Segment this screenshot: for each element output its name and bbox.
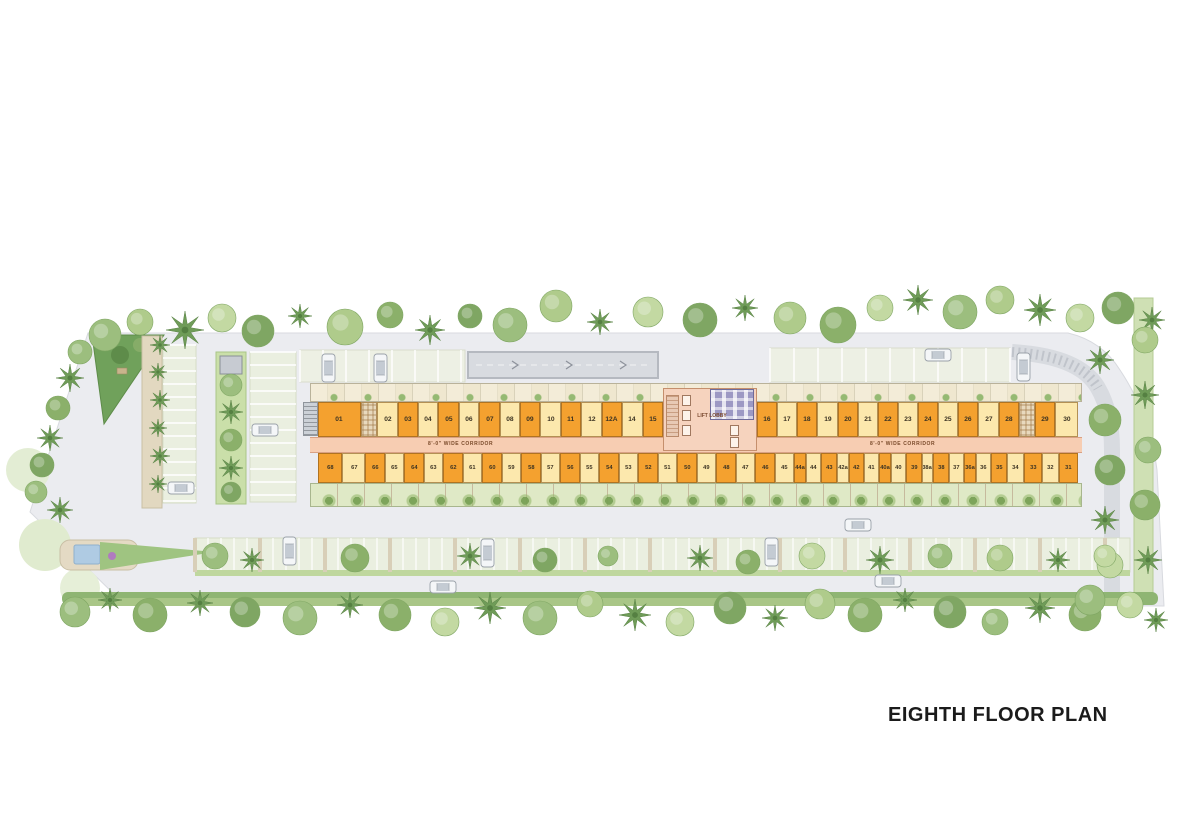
unit-52: 52 <box>638 453 658 483</box>
car-roof <box>324 361 333 375</box>
unit-32: 32 <box>1042 453 1059 483</box>
stall-post <box>583 538 587 572</box>
stall-post <box>908 538 912 572</box>
palm-center <box>1154 618 1158 622</box>
unit-01: 01 <box>318 402 361 437</box>
staircase-icon <box>666 395 679 437</box>
lift-lobby-label: LIFT LOBBY <box>697 413 727 419</box>
parking-column-west <box>163 345 196 503</box>
tree-highlight <box>345 548 358 561</box>
bench <box>117 368 127 374</box>
car-roof <box>175 484 187 492</box>
tree-highlight <box>670 612 683 625</box>
unit-number: 08 <box>506 416 513 423</box>
stall-post <box>778 538 782 572</box>
lift-icon <box>730 425 739 436</box>
unit-number: 41 <box>868 465 874 471</box>
hedge-bottom-parking <box>195 570 1130 576</box>
tree-highlight <box>991 549 1003 561</box>
corridor-label: 8'-0" WIDE CORRIDOR <box>428 441 493 447</box>
palm-center <box>1037 307 1043 313</box>
tree-highlight <box>825 312 841 328</box>
unit-46: 46 <box>755 453 775 483</box>
unit-number: 44a <box>796 465 806 471</box>
unit-17: 17 <box>777 402 797 437</box>
unit-number: 04 <box>425 416 432 423</box>
lift-icon <box>682 410 691 421</box>
palm-center <box>156 426 159 429</box>
tree-highlight <box>1136 331 1148 343</box>
unit-21: 21 <box>858 402 878 437</box>
unit-number: 28 <box>1005 416 1012 423</box>
palm-center <box>108 598 112 602</box>
tree-highlight <box>719 597 733 611</box>
staircase-west <box>303 402 318 436</box>
tree-highlight <box>528 606 543 621</box>
unit-number: 14 <box>629 416 636 423</box>
palm-center <box>903 598 907 602</box>
car-roof <box>932 351 944 359</box>
unit-number: 37 <box>953 465 959 471</box>
unit-36: 36 <box>976 453 991 483</box>
unit-04: 04 <box>418 402 438 437</box>
car-roof <box>767 545 776 559</box>
unit-number: 12 <box>588 416 595 423</box>
car <box>283 537 296 565</box>
stall-post <box>973 538 977 572</box>
car-roof <box>437 583 449 591</box>
tree-highlight <box>131 313 143 325</box>
palm-center <box>632 612 638 618</box>
unit-41: 41 <box>864 453 879 483</box>
unit-number: 26 <box>965 416 972 423</box>
tree-highlight <box>138 603 153 618</box>
car <box>481 539 494 567</box>
palm-center <box>1150 318 1155 323</box>
unit-number: 64 <box>411 465 417 471</box>
unit-number: 10 <box>547 416 554 423</box>
unit-number: 45 <box>781 465 787 471</box>
unit-number: 62 <box>450 465 456 471</box>
unit-40a: 40a <box>879 453 891 483</box>
tree-highlight <box>740 554 751 565</box>
palm-center <box>158 343 162 347</box>
palm-center <box>48 436 53 441</box>
tree-highlight <box>803 547 815 559</box>
unit-20: 20 <box>838 402 858 437</box>
unit-number: 67 <box>351 465 357 471</box>
tree-highlight <box>34 457 45 468</box>
unit-number: 06 <box>465 416 472 423</box>
lift-icon <box>682 425 691 436</box>
unit-number: 07 <box>486 416 493 423</box>
palm-center <box>743 306 748 311</box>
unit-27: 27 <box>978 402 998 437</box>
palm-center <box>156 370 159 373</box>
tree-highlight <box>810 594 824 608</box>
tree-highlight <box>986 613 998 625</box>
palm-center <box>1037 605 1042 610</box>
car <box>925 349 951 361</box>
unit-57: 57 <box>541 453 561 483</box>
unit-number: 53 <box>625 465 631 471</box>
unit-33: 33 <box>1024 453 1041 483</box>
palm-center <box>1097 357 1102 362</box>
palm-center <box>915 297 920 302</box>
unit-51: 51 <box>658 453 678 483</box>
stall-post <box>648 538 652 572</box>
car-roof <box>259 426 271 434</box>
palm-center <box>1102 517 1107 522</box>
unit-number: 23 <box>904 416 911 423</box>
tree-highlight <box>498 313 513 328</box>
unit-05: 05 <box>438 402 458 437</box>
unit-24: 24 <box>918 402 938 437</box>
corridor-label: 8'-0" WIDE CORRIDOR <box>870 441 935 447</box>
palm-center <box>468 554 473 559</box>
unit-16: 16 <box>757 402 777 437</box>
unit-segment-top-left: 01020304050607080910111212A1415 <box>318 402 663 437</box>
tree-highlight <box>601 549 610 558</box>
tree-highlight <box>28 484 38 494</box>
palm-center <box>182 327 189 334</box>
tree-highlight <box>223 432 233 442</box>
palm-center <box>1142 392 1147 397</box>
unit-48: 48 <box>716 453 736 483</box>
lift-lobby: LIFT LOBBY <box>663 388 757 451</box>
palm-center <box>1145 557 1150 562</box>
unit-number: 51 <box>664 465 670 471</box>
palm-center <box>698 556 703 561</box>
unit-number: 12A <box>606 416 618 423</box>
unit-number: 65 <box>391 465 397 471</box>
tree-highlight <box>94 324 108 338</box>
palm-center <box>158 398 162 402</box>
building-block: 01020304050607080910111212A1415 16171819… <box>310 383 1082 505</box>
palm-center <box>158 454 162 458</box>
unit-number: 32 <box>1047 465 1053 471</box>
car-roof <box>285 544 294 558</box>
palm-center <box>298 314 302 318</box>
unit-number: 15 <box>649 416 656 423</box>
unit-25: 25 <box>938 402 958 437</box>
stall-post <box>518 538 522 572</box>
unit-number: 55 <box>586 465 592 471</box>
utility-kiosk <box>220 356 242 374</box>
unit-number: 18 <box>804 416 811 423</box>
tree-highlight <box>1121 596 1133 608</box>
unit-22: 22 <box>878 402 898 437</box>
tree-highlight <box>212 308 225 321</box>
unit-number: 52 <box>645 465 651 471</box>
tree-highlight <box>247 320 261 334</box>
unit-number: 30 <box>1063 416 1070 423</box>
unit-08: 08 <box>500 402 520 437</box>
stall-post <box>1038 538 1042 572</box>
car-roof <box>852 521 864 529</box>
unit-38a: 38a <box>922 453 934 483</box>
unit-07: 07 <box>479 402 499 437</box>
unit-39: 39 <box>906 453 921 483</box>
unit-11: 11 <box>561 402 581 437</box>
unit-number: 60 <box>489 465 495 471</box>
unit-number: 61 <box>469 465 475 471</box>
car <box>252 424 278 436</box>
tree-highlight <box>72 344 83 355</box>
unit-number: 17 <box>783 416 790 423</box>
unit-19: 19 <box>817 402 837 437</box>
tree-highlight <box>65 602 79 616</box>
tree-highlight <box>1094 409 1108 423</box>
palm-center <box>773 616 778 621</box>
unit-23: 23 <box>898 402 918 437</box>
tree-highlight <box>1135 495 1149 509</box>
atrium-courtyard <box>1019 402 1036 437</box>
stall-post <box>323 538 327 572</box>
terrace-strip-bottom <box>310 483 1082 507</box>
unit-number: 59 <box>508 465 514 471</box>
unit-number: 54 <box>606 465 612 471</box>
unit-number: 11 <box>568 416 575 423</box>
tree-highlight <box>581 595 593 607</box>
car-roof <box>376 361 385 375</box>
tree-highlight <box>384 604 398 618</box>
unit-number: 58 <box>528 465 534 471</box>
palm-center <box>598 320 603 325</box>
tree-highlight <box>462 308 473 319</box>
lift-icon <box>730 437 739 448</box>
tree-highlight <box>853 603 868 618</box>
unit-number: 36 <box>980 465 986 471</box>
unit-38: 38 <box>933 453 948 483</box>
tree-highlight <box>871 299 883 311</box>
stall-post <box>388 538 392 572</box>
palm-center <box>229 466 233 470</box>
stall-post <box>453 538 457 572</box>
unit-31: 31 <box>1059 453 1078 483</box>
palm-center <box>487 605 493 611</box>
unit-number: 21 <box>864 416 871 423</box>
unit-number: 01 <box>336 416 343 423</box>
lift-icon <box>682 395 691 406</box>
tree-highlight <box>688 308 703 323</box>
unit-number: 57 <box>547 465 553 471</box>
palm-center <box>58 508 63 513</box>
unit-06: 06 <box>459 402 479 437</box>
unit-number: 29 <box>1041 416 1048 423</box>
palm-center <box>1056 558 1060 562</box>
tree-highlight <box>1139 441 1151 453</box>
tree-highlight <box>1070 308 1083 321</box>
unit-number: 09 <box>527 416 534 423</box>
unit-28: 28 <box>999 402 1019 437</box>
palm-center <box>156 482 159 485</box>
unit-35: 35 <box>991 453 1007 483</box>
unit-number: 43 <box>826 465 832 471</box>
driveway-ramp <box>468 352 658 378</box>
unit-63: 63 <box>424 453 444 483</box>
unit-row-bottom: 6867666564636261605958575655545352515049… <box>310 453 1082 483</box>
tree-highlight <box>332 314 348 330</box>
palm-center <box>348 603 353 608</box>
car <box>1017 353 1030 381</box>
stall-post <box>193 538 197 572</box>
unit-number: 42a <box>838 465 848 471</box>
tree-highlight <box>223 377 233 387</box>
unit-number: 49 <box>703 465 709 471</box>
tree-highlight <box>779 307 793 321</box>
unit-segment-top-right: 161718192021222324252627282930 <box>757 402 1078 437</box>
unit-36a: 36a <box>964 453 976 483</box>
tree-highlight <box>1097 548 1107 558</box>
unit-number: 40a <box>880 465 890 471</box>
unit-37: 37 <box>949 453 964 483</box>
car <box>845 519 871 531</box>
unit-number: 42 <box>853 465 859 471</box>
unit-number: 20 <box>844 416 851 423</box>
car-roof <box>882 577 894 585</box>
tree-highlight <box>224 485 233 494</box>
unit-56: 56 <box>560 453 580 483</box>
unit-02: 02 <box>377 402 397 437</box>
unit-43: 43 <box>821 453 836 483</box>
tree-highlight <box>1100 460 1114 474</box>
unit-44: 44 <box>806 453 821 483</box>
tree-highlight <box>435 612 448 625</box>
unit-number: 02 <box>384 416 391 423</box>
unit-number: 36a <box>965 465 975 471</box>
unit-62: 62 <box>443 453 463 483</box>
unit-61: 61 <box>463 453 483 483</box>
unit-number: 27 <box>985 416 992 423</box>
car-roof <box>1019 360 1028 374</box>
car <box>765 538 778 566</box>
tree-highlight <box>932 548 943 559</box>
unit-68: 68 <box>318 453 342 483</box>
palm-center <box>198 601 203 606</box>
unit-number: 05 <box>445 416 452 423</box>
unit-54: 54 <box>599 453 619 483</box>
palm-center <box>229 410 233 414</box>
tree-highlight <box>545 295 559 309</box>
unit-number: 16 <box>763 416 770 423</box>
unit-number: 48 <box>723 465 729 471</box>
unit-40: 40 <box>891 453 906 483</box>
unit-29: 29 <box>1035 402 1055 437</box>
unit-number: 22 <box>884 416 891 423</box>
unit-64: 64 <box>404 453 424 483</box>
tree-highlight <box>990 290 1003 303</box>
tree-highlight <box>638 302 652 316</box>
unit-44a: 44a <box>794 453 806 483</box>
unit-42: 42 <box>849 453 864 483</box>
unit-number: 34 <box>1013 465 1019 471</box>
unit-number: 66 <box>372 465 378 471</box>
unit-10: 10 <box>540 402 560 437</box>
unit-number: 19 <box>824 416 831 423</box>
unit-15: 15 <box>643 402 663 437</box>
tree-highlight <box>235 602 249 616</box>
unit-number: 50 <box>684 465 690 471</box>
floor-plan-page: { "title": "EIGHTH FLOOR PLAN", "palette… <box>0 0 1200 821</box>
tree-highlight <box>1107 297 1121 311</box>
car <box>168 482 194 494</box>
palm-center <box>427 327 432 332</box>
palm-center <box>67 375 72 380</box>
unit-47: 47 <box>736 453 756 483</box>
tree-highlight <box>537 552 548 563</box>
tree-highlight <box>206 547 218 559</box>
unit-59: 59 <box>502 453 522 483</box>
unit-09: 09 <box>520 402 540 437</box>
unit-66: 66 <box>365 453 385 483</box>
unit-49: 49 <box>697 453 717 483</box>
unit-12A: 12A <box>602 402 622 437</box>
unit-number: 35 <box>996 465 1002 471</box>
unit-42a: 42a <box>837 453 849 483</box>
unit-number: 24 <box>924 416 931 423</box>
unit-number: 25 <box>944 416 951 423</box>
car <box>322 354 335 382</box>
unit-53: 53 <box>619 453 639 483</box>
unit-number: 33 <box>1030 465 1036 471</box>
unit-number: 47 <box>742 465 748 471</box>
unit-number: 38a <box>923 465 933 471</box>
unit-number: 40 <box>895 465 901 471</box>
car <box>430 581 456 593</box>
car-roof <box>483 546 492 560</box>
tree-highlight <box>381 306 393 318</box>
unit-number: 44 <box>811 465 817 471</box>
unit-26: 26 <box>958 402 978 437</box>
car <box>875 575 901 587</box>
palm-center <box>877 557 882 562</box>
tree-highlight <box>939 601 953 615</box>
unit-number: 38 <box>938 465 944 471</box>
unit-34: 34 <box>1007 453 1024 483</box>
unit-67: 67 <box>342 453 365 483</box>
unit-50: 50 <box>677 453 697 483</box>
unit-58: 58 <box>521 453 541 483</box>
tree-highlight <box>288 606 303 621</box>
unit-18: 18 <box>797 402 817 437</box>
unit-12: 12 <box>581 402 601 437</box>
unit-number: 68 <box>327 465 333 471</box>
atrium-courtyard <box>361 402 378 437</box>
unit-55: 55 <box>580 453 600 483</box>
palm-center <box>250 558 254 562</box>
unit-number: 39 <box>911 465 917 471</box>
unit-14: 14 <box>622 402 642 437</box>
unit-number: 56 <box>567 465 573 471</box>
unit-number: 46 <box>762 465 768 471</box>
tree-highlight <box>50 400 61 411</box>
plan-title: EIGHTH FLOOR PLAN <box>888 704 1108 727</box>
unit-45: 45 <box>775 453 795 483</box>
tree-highlight <box>948 300 963 315</box>
unit-number: 31 <box>1065 465 1071 471</box>
car <box>374 354 387 382</box>
stall-post <box>713 538 717 572</box>
stall-post <box>843 538 847 572</box>
unit-number: 63 <box>430 465 436 471</box>
unit-65: 65 <box>385 453 405 483</box>
unit-number: 03 <box>404 416 411 423</box>
tree-highlight <box>1080 590 1094 604</box>
unit-30: 30 <box>1055 402 1078 437</box>
unit-60: 60 <box>482 453 502 483</box>
unit-03: 03 <box>398 402 418 437</box>
